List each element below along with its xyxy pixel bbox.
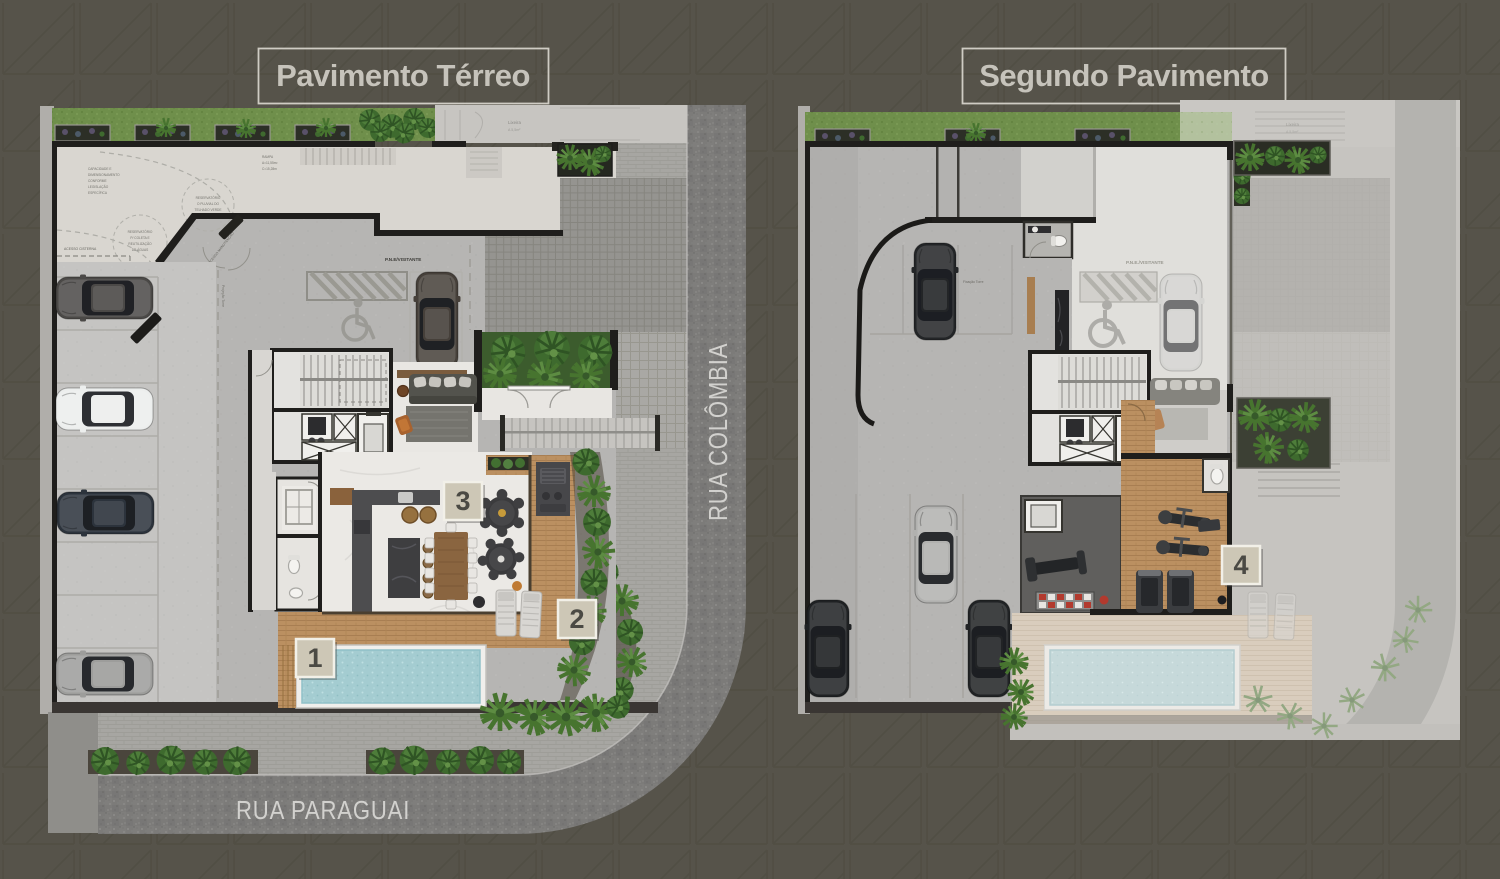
svg-text:Lixeira: Lixeira (1286, 122, 1299, 127)
svg-text:RUA COLÔMBIA: RUA COLÔMBIA (703, 343, 733, 521)
svg-text:A 5,5m²: A 5,5m² (1286, 130, 1299, 134)
svg-text:P/ COLETA E: P/ COLETA E (130, 236, 149, 240)
svg-text:1: 1 (307, 643, 322, 673)
svg-text:RESERVATÓRIO: RESERVATÓRIO (128, 229, 153, 234)
svg-text:Lixeira: Lixeira (508, 120, 521, 125)
svg-text:4: 4 (1233, 550, 1248, 580)
svg-text:TELHADO VERDE: TELHADO VERDE (195, 208, 222, 212)
svg-text:LEGISLAÇÃO: LEGISLAÇÃO (88, 184, 109, 189)
svg-text:DIMENSIONAMENTO: DIMENSIONAMENTO (88, 173, 120, 177)
svg-text:A=11,55m²: A=11,55m² (262, 161, 277, 165)
svg-text:RESERVATÓRIO: RESERVATÓRIO (196, 195, 221, 200)
svg-text:ESPECÍFICA: ESPECÍFICA (88, 191, 108, 195)
svg-text:P.N.E./VISITANTE: P.N.E./VISITANTE (1126, 260, 1164, 265)
svg-text:ACESSO CISTERNA: ACESSO CISTERNA (64, 247, 97, 251)
svg-text:C=15,28m: C=15,28m (262, 167, 277, 171)
svg-text:RAMPA: RAMPA (262, 155, 274, 159)
svg-text:O PLUVIAL DO: O PLUVIAL DO (197, 202, 220, 206)
svg-text:REUTILIZAÇÃO: REUTILIZAÇÃO (128, 241, 152, 246)
svg-text:A 5,5m²: A 5,5m² (508, 128, 521, 132)
svg-text:Projeção Torre: Projeção Torre (221, 285, 225, 307)
svg-text:RUA PARAGUAI: RUA PARAGUAI (236, 796, 410, 825)
svg-text:P.N.E/VISITANTE: P.N.E/VISITANTE (385, 257, 421, 262)
svg-text:Fixação Torre: Fixação Torre (963, 280, 984, 284)
svg-text:Segundo Pavimento: Segundo Pavimento (979, 58, 1268, 93)
svg-text:Pavimento Térreo: Pavimento Térreo (276, 58, 530, 93)
svg-text:DE ÁGUAS: DE ÁGUAS (132, 248, 148, 252)
svg-text:CAPACIDADE E: CAPACIDADE E (88, 167, 112, 171)
svg-text:3: 3 (455, 486, 470, 516)
svg-text:CONFORME: CONFORME (88, 179, 107, 183)
svg-text:2: 2 (569, 604, 584, 634)
